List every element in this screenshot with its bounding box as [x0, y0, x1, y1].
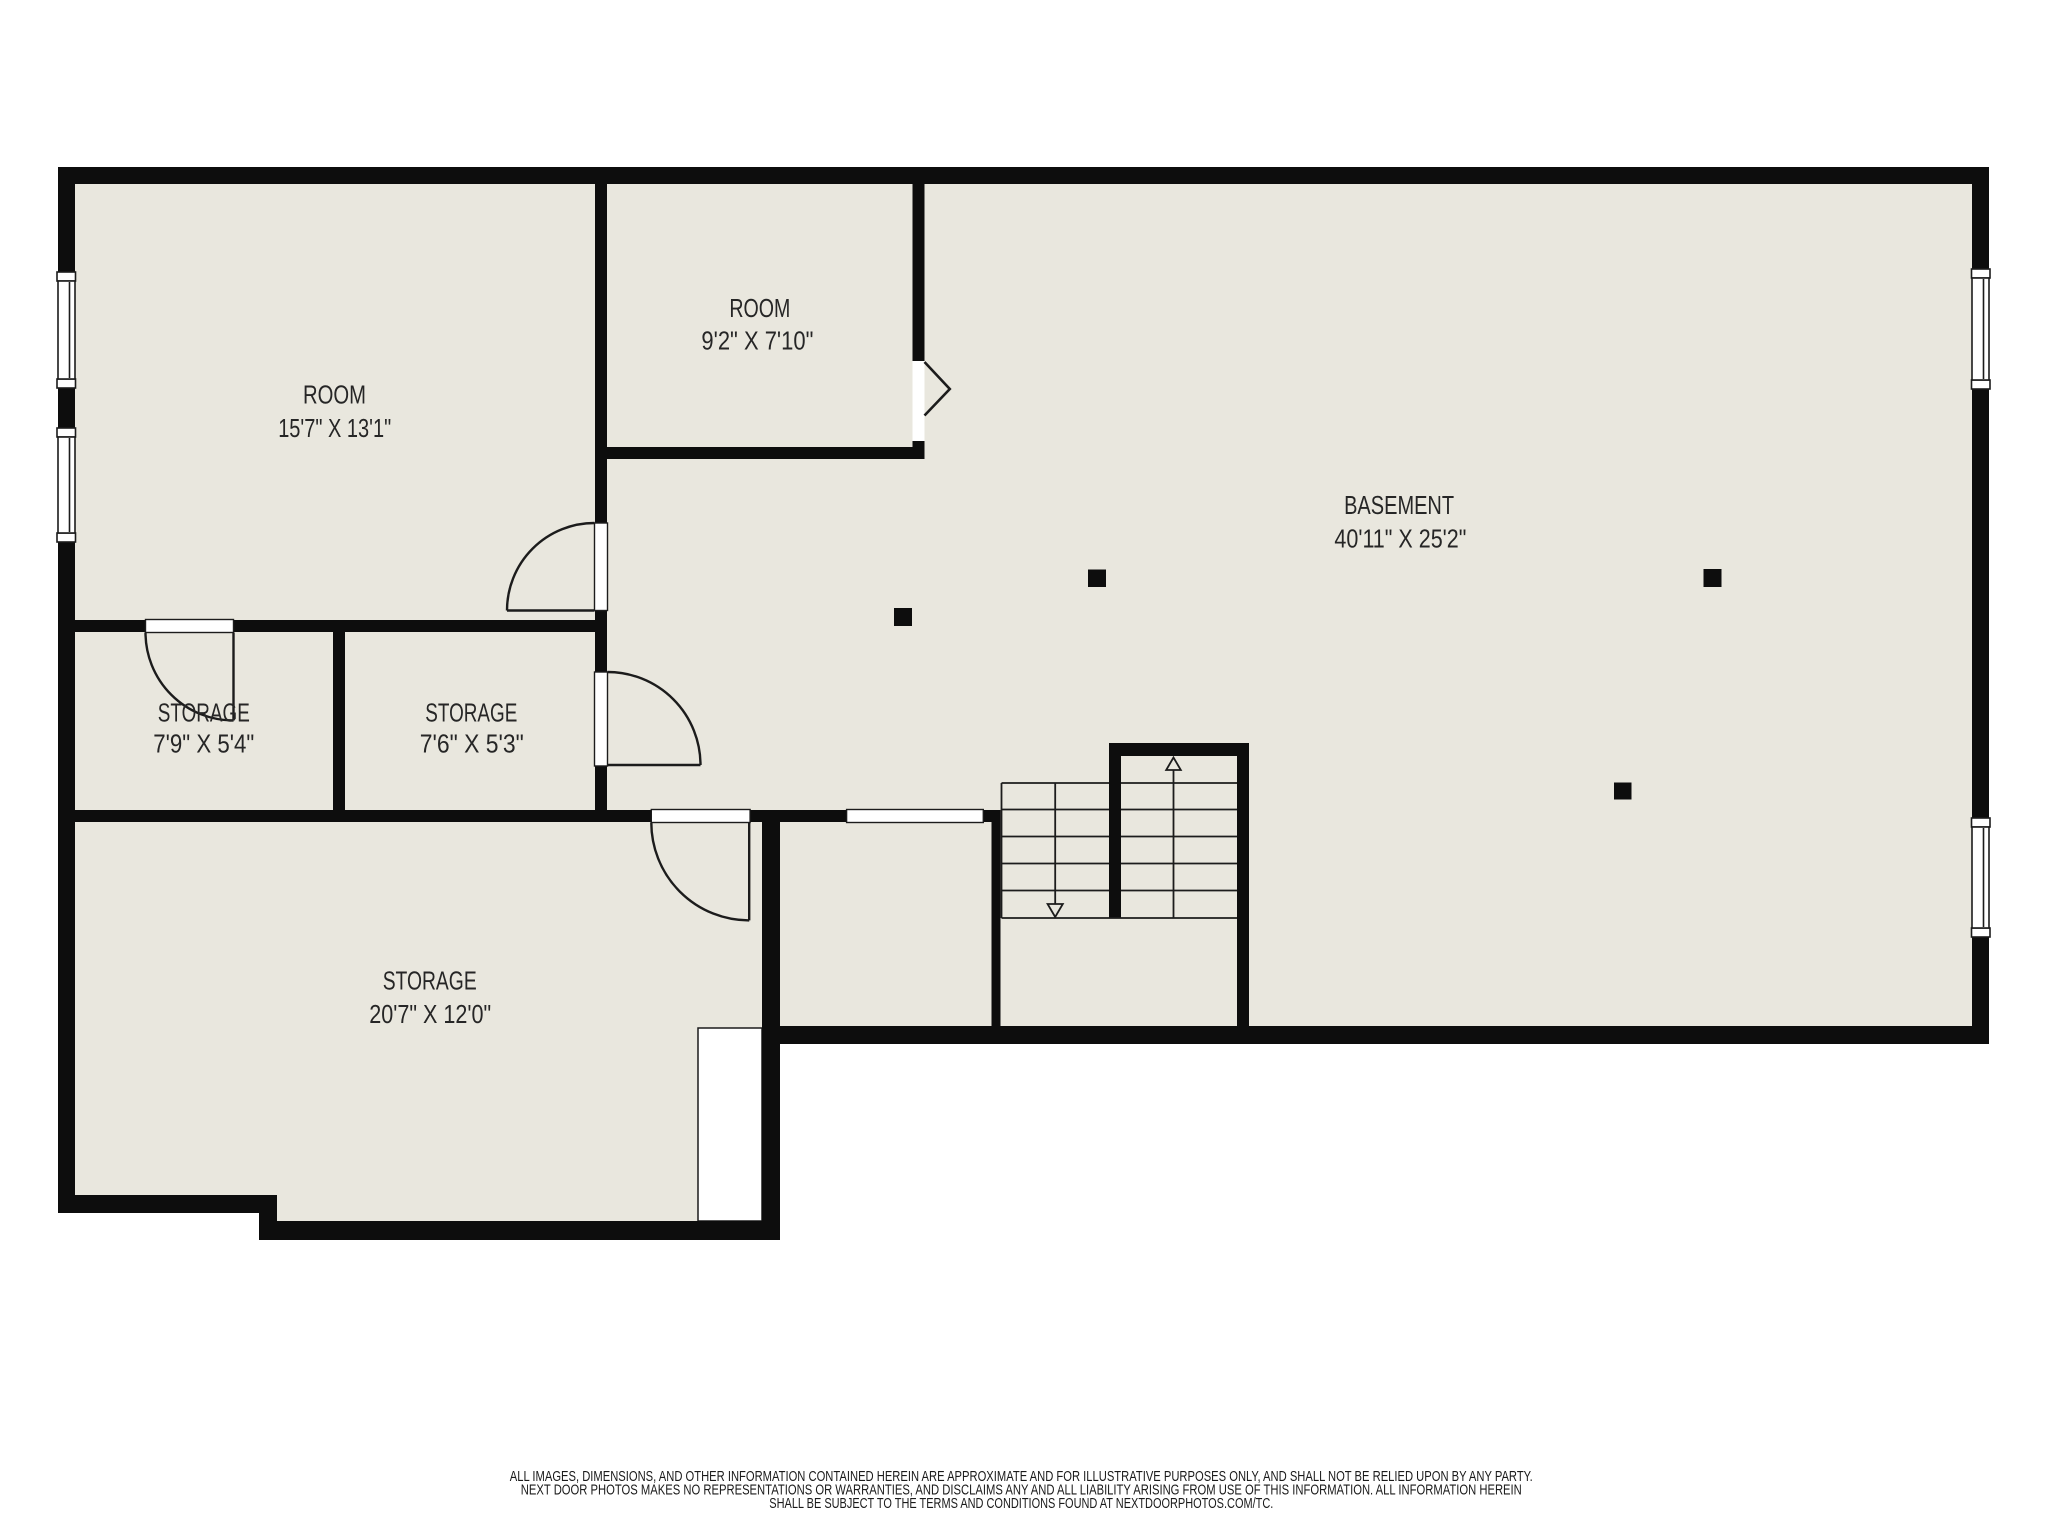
- svg-text:40'11" X 25'2": 40'11" X 25'2": [1334, 524, 1466, 554]
- svg-text:20'7" X 12'0": 20'7" X 12'0": [369, 999, 491, 1029]
- svg-text:9'2" X 7'10": 9'2" X 7'10": [701, 325, 813, 355]
- svg-text:STORAGE: STORAGE: [158, 698, 250, 728]
- svg-text:ROOM: ROOM: [303, 380, 366, 410]
- svg-text:SHALL BE SUBJECT TO THE TERMS: SHALL BE SUBJECT TO THE TERMS AND CONDIT…: [769, 1496, 1273, 1512]
- svg-text:BASEMENT: BASEMENT: [1344, 490, 1454, 520]
- svg-text:STORAGE: STORAGE: [383, 966, 477, 996]
- svg-text:7'9" X 5'4": 7'9" X 5'4": [153, 728, 254, 758]
- svg-text:15'7" X 13'1": 15'7" X 13'1": [278, 413, 391, 443]
- svg-text:ROOM: ROOM: [729, 293, 790, 323]
- svg-text:7'6" X 5'3": 7'6" X 5'3": [420, 728, 524, 758]
- svg-text:STORAGE: STORAGE: [425, 698, 517, 728]
